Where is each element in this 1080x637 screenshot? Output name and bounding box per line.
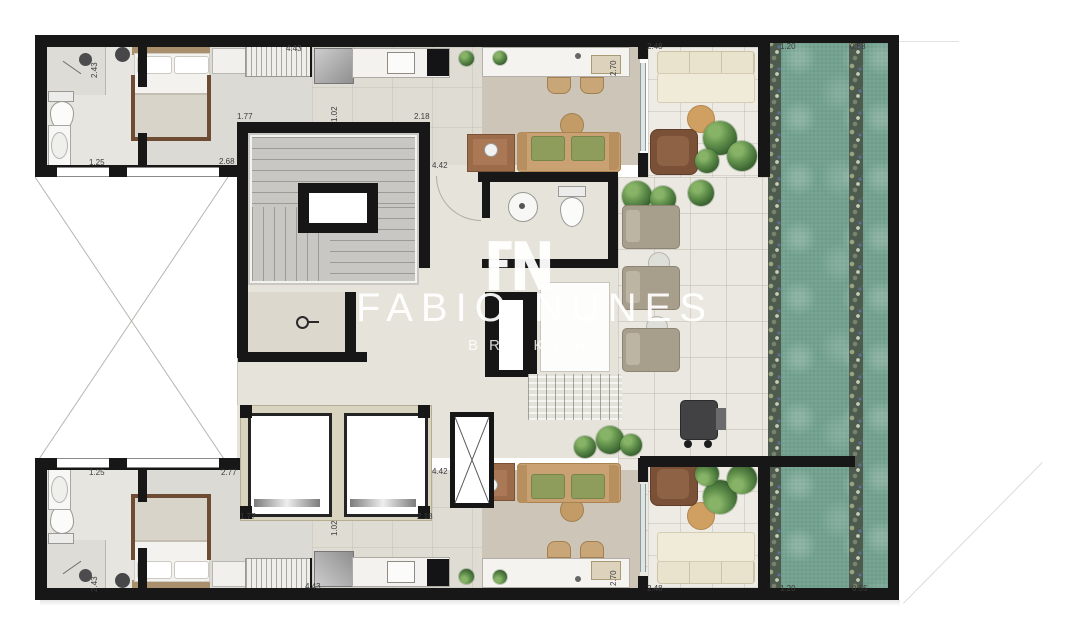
sheet-edges [0, 0, 1080, 637]
plan-bottom-shadow [40, 600, 900, 606]
sheet-fold-line [903, 462, 1043, 604]
sheet-top-edge-line [899, 41, 959, 42]
floor-plan: 2.434.431.771.022.181.252.684.422.702.48… [0, 0, 1080, 637]
